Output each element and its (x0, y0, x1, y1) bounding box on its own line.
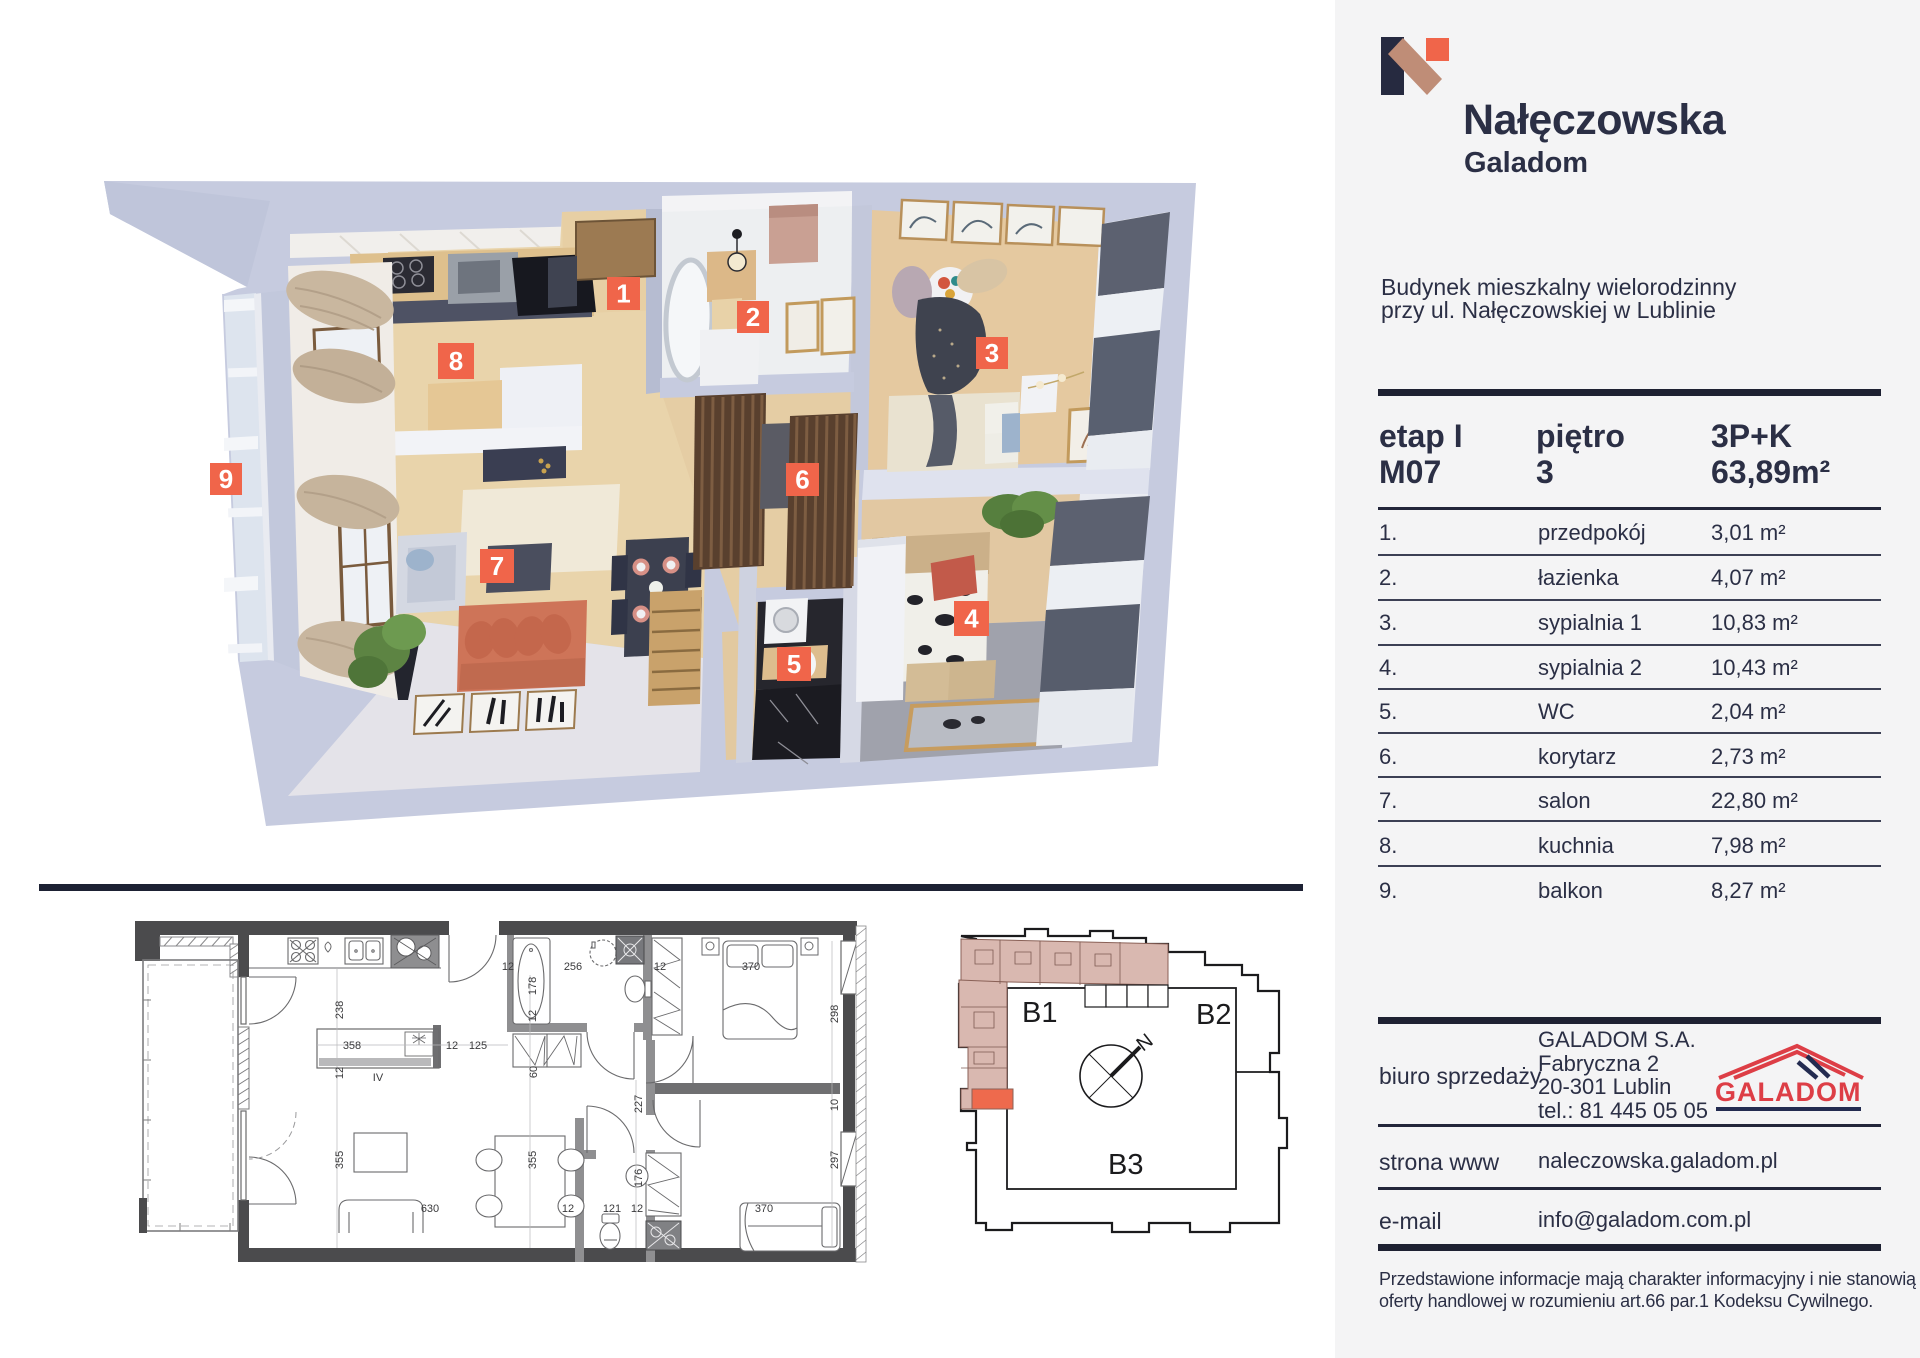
svg-text:298: 298 (829, 1005, 841, 1023)
svg-text:5: 5 (787, 649, 801, 679)
svg-text:12: 12 (562, 1203, 574, 1215)
svg-text:370: 370 (742, 961, 760, 973)
svg-text:238: 238 (334, 1001, 346, 1019)
svg-text:297: 297 (829, 1151, 841, 1169)
svg-text:12: 12 (334, 1067, 346, 1079)
svg-text:178: 178 (527, 977, 539, 995)
svg-text:8: 8 (449, 346, 463, 376)
svg-text:9: 9 (219, 464, 233, 494)
svg-text:358: 358 (343, 1040, 361, 1052)
svg-text:125: 125 (469, 1040, 487, 1052)
svg-text:355: 355 (334, 1151, 346, 1169)
svg-text:630: 630 (421, 1203, 439, 1215)
svg-text:12: 12 (631, 1203, 643, 1215)
svg-text:12: 12 (654, 961, 666, 973)
svg-text:12: 12 (527, 1010, 539, 1022)
svg-text:3: 3 (985, 338, 999, 368)
svg-text:12: 12 (502, 961, 514, 973)
svg-text:121: 121 (603, 1203, 621, 1215)
svg-text:227: 227 (633, 1095, 645, 1113)
svg-text:12: 12 (446, 1040, 458, 1052)
svg-text:1: 1 (616, 279, 630, 309)
svg-text:7: 7 (490, 551, 504, 581)
svg-text:176: 176 (633, 1169, 645, 1187)
svg-text:GALADOM: GALADOM (1715, 1077, 1861, 1107)
svg-text:370: 370 (755, 1203, 773, 1215)
svg-text:60: 60 (528, 1066, 540, 1078)
svg-text:256: 256 (564, 961, 582, 973)
svg-text:B3: B3 (1108, 1149, 1143, 1181)
svg-text:B2: B2 (1196, 999, 1231, 1031)
svg-text:355: 355 (527, 1151, 539, 1169)
svg-text:10: 10 (829, 1099, 841, 1111)
svg-text:6: 6 (795, 465, 809, 495)
svg-text:IV: IV (373, 1072, 384, 1084)
svg-text:4: 4 (964, 604, 979, 634)
svg-text:2: 2 (746, 302, 760, 332)
svg-text:B1: B1 (1022, 997, 1057, 1029)
